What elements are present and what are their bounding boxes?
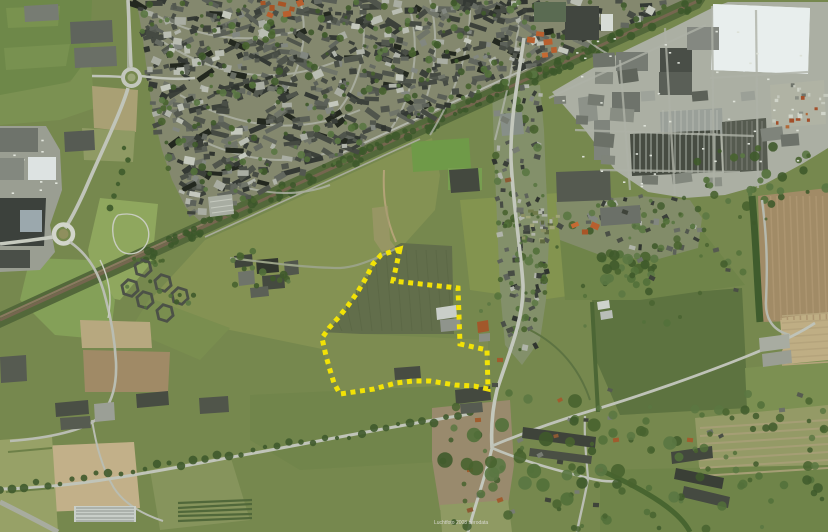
svg-text:Luchtfoto 2008 aerodata: Luchtfoto 2008 aerodata (434, 520, 488, 526)
